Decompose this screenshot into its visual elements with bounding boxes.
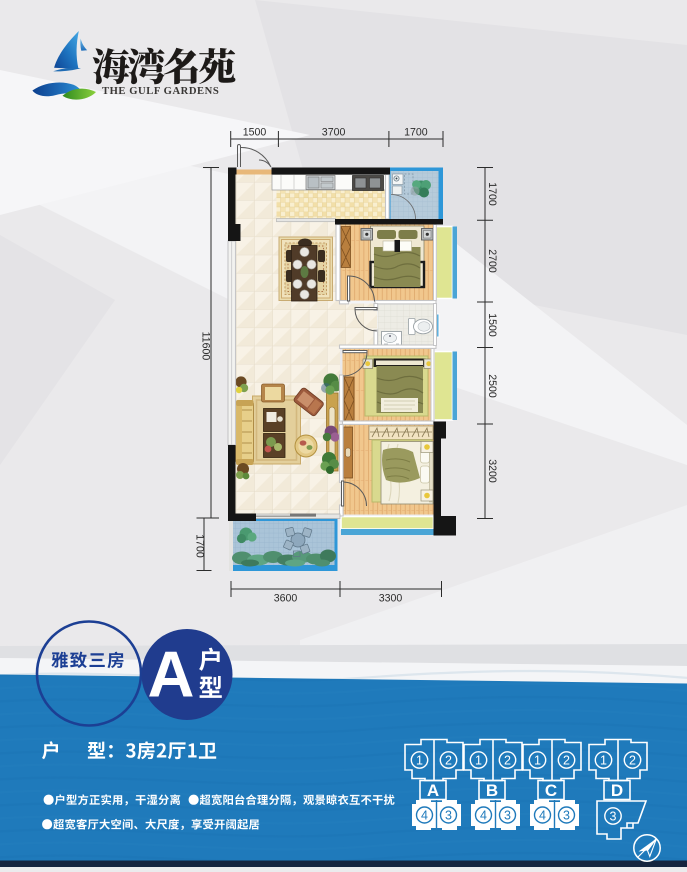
svg-text:D: D	[611, 781, 623, 800]
svg-text:1: 1	[475, 754, 482, 768]
svg-text:3: 3	[610, 810, 617, 824]
svg-text:3: 3	[445, 809, 452, 823]
svg-text:A: A	[148, 638, 195, 711]
svg-text:B: B	[486, 781, 498, 800]
svg-text:A: A	[427, 781, 439, 800]
svg-text:1: 1	[600, 754, 607, 768]
svg-text:3600: 3600	[274, 593, 298, 605]
svg-text:1700: 1700	[486, 182, 498, 206]
svg-text:2500: 2500	[486, 374, 498, 398]
svg-text:3200: 3200	[486, 459, 498, 483]
svg-text:4: 4	[539, 809, 546, 823]
svg-text:1: 1	[416, 754, 423, 768]
svg-text:C: C	[545, 781, 557, 800]
svg-text:4: 4	[421, 809, 428, 823]
svg-text:2700: 2700	[486, 249, 498, 273]
svg-text:1500: 1500	[243, 127, 267, 139]
svg-text:1700: 1700	[404, 127, 428, 139]
svg-text:2: 2	[504, 754, 511, 768]
svg-text:11600: 11600	[200, 332, 212, 361]
svg-text:2: 2	[629, 754, 636, 768]
svg-text:1700: 1700	[194, 534, 206, 558]
svg-text:3: 3	[504, 809, 511, 823]
svg-text:3300: 3300	[379, 593, 403, 605]
svg-text:1500: 1500	[486, 313, 498, 337]
svg-text:4: 4	[480, 809, 487, 823]
svg-text:3: 3	[563, 809, 570, 823]
svg-text:2: 2	[563, 754, 570, 768]
svg-text:3700: 3700	[322, 127, 346, 139]
svg-text:1: 1	[534, 754, 541, 768]
svg-text:THE GULF GARDENS: THE GULF GARDENS	[102, 86, 219, 97]
svg-text:2: 2	[445, 754, 452, 768]
